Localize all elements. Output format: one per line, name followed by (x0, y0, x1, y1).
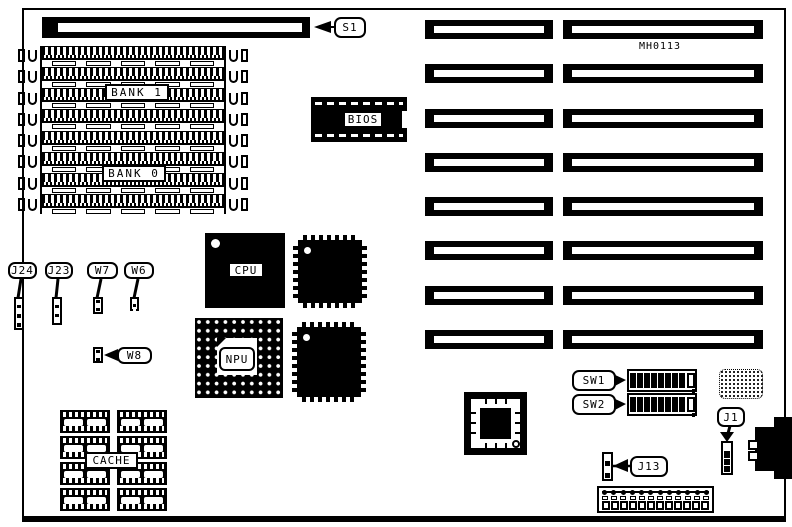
npu-label: NPU (219, 347, 255, 371)
motherboard-diagram: S1 (0, 0, 792, 527)
dip-switch-segment (658, 397, 664, 412)
pin1-marker (217, 338, 226, 347)
dip-pins (120, 412, 164, 417)
expansion-slot (425, 64, 553, 83)
dip-switch-segment (644, 373, 650, 388)
keyboard-connector-tab (748, 440, 759, 450)
jumper-cell (96, 358, 100, 361)
expansion-slots-right (563, 20, 763, 349)
simm-latch (18, 174, 40, 193)
simm-socket-row (42, 131, 224, 151)
simm-spacer (52, 82, 76, 87)
latch-pad (18, 92, 25, 105)
slot-stripe (434, 292, 544, 299)
simm-spacer (190, 82, 214, 87)
jumper-cell (724, 459, 730, 465)
dip-body (121, 497, 163, 504)
power-dash (657, 496, 663, 500)
jumper-cell (96, 304, 100, 307)
dot-pad-component (719, 369, 763, 399)
simm-spacer-row (42, 187, 224, 193)
plcc-ticks (477, 443, 514, 448)
latch-pad (241, 113, 248, 126)
cache-chip (117, 488, 167, 511)
power-dash (611, 496, 617, 500)
power-pin (685, 490, 690, 495)
slot-stripe (434, 336, 544, 343)
plcc-ticks (471, 405, 476, 442)
expansion-slot (425, 241, 553, 260)
bios-notch (402, 111, 407, 128)
slot-stripe (434, 203, 544, 210)
latch-hook-icon (28, 93, 37, 105)
simm-spacer (155, 61, 179, 66)
slot-stripe (434, 159, 544, 166)
power-pin (630, 490, 635, 495)
simm-spacer-row (42, 102, 224, 108)
dip-body (64, 497, 106, 504)
simm-spacer-row (42, 60, 224, 66)
j13-label: J13 (630, 456, 668, 477)
cpu-label: CPU (228, 262, 264, 278)
latch-pad (18, 70, 25, 83)
simm-banks (40, 46, 226, 214)
dip-pins (63, 426, 107, 431)
expansion-slot (563, 197, 763, 216)
expansion-slot (425, 109, 553, 128)
bank1-label: BANK 1 (105, 84, 169, 101)
npu-center: NPU (217, 338, 257, 375)
jumper-cell (605, 461, 610, 466)
jumper-cell (55, 309, 59, 313)
dip-switch-segment (665, 397, 671, 412)
simm-spacer (190, 188, 214, 193)
power-dash (602, 496, 608, 500)
dip-body (121, 419, 163, 426)
simm-pin-comb (42, 152, 224, 161)
dip-switch-segment (672, 373, 678, 388)
power-dash (675, 496, 681, 500)
latch-hook-icon (28, 199, 37, 211)
latch-hook-icon (28, 135, 37, 147)
cache-label: CACHE (85, 452, 138, 469)
jumper-cell (55, 314, 59, 318)
dip-pins (63, 438, 107, 443)
slot-stripe (572, 203, 754, 210)
simm-spacer (190, 146, 214, 151)
slot-stripe (572, 292, 754, 299)
latch-hook-icon (28, 114, 37, 126)
simm-spacer (52, 167, 76, 172)
latch-hook-icon (229, 156, 238, 168)
j24-jumper (14, 297, 24, 330)
dip-switch-segment (637, 397, 643, 412)
jumper-cell (17, 319, 21, 323)
power-socket (656, 501, 664, 510)
simm-spacer (121, 124, 145, 129)
w6-jumper (130, 297, 139, 311)
pin1-circle-icon (512, 440, 520, 448)
power-socket (638, 501, 646, 510)
simm-pin-comb (42, 131, 224, 140)
slot-stripe (572, 336, 754, 343)
power-pin (704, 490, 709, 495)
expansion-slot (425, 20, 553, 39)
simm-latch (18, 152, 40, 171)
switch-dot (692, 413, 695, 417)
qfp-chip-2 (292, 322, 366, 402)
latch-hook-icon (229, 93, 238, 105)
latch-pad (241, 198, 248, 211)
power-socket (647, 501, 655, 510)
latch-pad (18, 49, 25, 62)
power-dash (666, 496, 672, 500)
simm-spacer (86, 61, 110, 66)
slot-stripe (434, 115, 544, 122)
dip-switch-segment (665, 373, 671, 388)
simm-spacer-row (42, 123, 224, 129)
power-socket (692, 501, 700, 510)
simm-spacer (86, 103, 110, 108)
latch-hook-icon (229, 199, 238, 211)
simm-latch (18, 131, 40, 150)
simm-spacer-row (42, 208, 224, 214)
power-pin (658, 490, 663, 495)
j13-jumper (602, 452, 613, 481)
power-socket (620, 501, 628, 510)
simm-spacer-row (42, 145, 224, 151)
simm-socket-row (42, 109, 224, 129)
expansion-slot (563, 20, 763, 39)
sw2-switch (627, 393, 697, 416)
jumper-cell (133, 308, 136, 311)
power-pin (667, 490, 672, 495)
power-socket (683, 501, 691, 510)
power-dash (648, 496, 654, 500)
dip-switch-end (687, 397, 695, 412)
expansion-slot (563, 330, 763, 349)
plcc-ticks (515, 405, 520, 442)
dip-switch-segment (651, 373, 657, 388)
simm-latches-left (18, 46, 40, 214)
j23-jumper (52, 297, 62, 325)
cache-chip (117, 410, 167, 433)
plcc-chip (464, 392, 527, 455)
latch-pad (18, 198, 25, 211)
slot-stripe (572, 115, 754, 122)
simm-spacer (52, 146, 76, 151)
jumper-cell (724, 466, 730, 472)
simm-spacer (52, 103, 76, 108)
latch-pad (241, 49, 248, 62)
dip-body (121, 471, 163, 478)
expansion-slot (563, 64, 763, 83)
dip-switch-segment (651, 397, 657, 412)
dip-pins (63, 504, 107, 509)
dip-pins (120, 426, 164, 431)
power-pin (648, 490, 653, 495)
simm-spacer (190, 124, 214, 129)
latch-pad (241, 134, 248, 147)
power-pin (602, 490, 607, 495)
simm-latch (18, 89, 40, 108)
w8-label: W8 (117, 347, 152, 364)
simm-latch (226, 195, 248, 214)
simm-spacer (190, 209, 214, 214)
latch-hook-icon (229, 50, 238, 62)
latch-pad (18, 113, 25, 126)
simm-latches-right (226, 46, 248, 214)
simm-spacer (155, 188, 179, 193)
pin1-dot (304, 247, 311, 254)
cache-chip (60, 410, 110, 433)
jumper-cell (133, 304, 136, 307)
jumper-cell (724, 451, 730, 457)
latch-hook-icon (28, 71, 37, 83)
plcc-ticks (477, 399, 514, 404)
plcc-die (480, 408, 511, 439)
power-dash-row (602, 496, 709, 500)
jumper-cell (55, 318, 59, 322)
expansion-slot (425, 286, 553, 305)
simm-spacer (121, 103, 145, 108)
power-dash (630, 496, 636, 500)
simm-socket-row (42, 194, 224, 214)
latch-pad (241, 92, 248, 105)
jumper-cell (96, 300, 100, 303)
board-model-label: MH0113 (628, 41, 692, 54)
slot-stripe (572, 70, 754, 77)
cache-chip (60, 488, 110, 511)
simm-socket-row (42, 46, 224, 66)
simm-spacer (52, 209, 76, 214)
s1-slot-stripe (58, 23, 302, 32)
latch-pad (241, 70, 248, 83)
j1-label: J1 (717, 407, 745, 427)
simm-latch (18, 110, 40, 129)
simm-latch (226, 46, 248, 65)
bank0-label: BANK 0 (102, 165, 166, 182)
jumper-cell (17, 309, 21, 313)
bios-socket-dashes (315, 134, 403, 137)
simm-spacer (155, 146, 179, 151)
simm-spacer (52, 124, 76, 129)
power-socket (674, 501, 682, 510)
power-socket (611, 501, 619, 510)
dip-pins (120, 490, 164, 495)
dip-switch-segment (679, 373, 685, 388)
dip-switch-segments (630, 373, 685, 388)
expansion-slot (563, 109, 763, 128)
dip-body (64, 471, 106, 478)
jumper-cell (605, 473, 610, 478)
latch-hook-icon (28, 178, 37, 190)
dip-switch-segments (630, 397, 685, 412)
slot-stripe (572, 247, 754, 254)
latch-pad (241, 177, 248, 190)
dip-body (64, 445, 106, 452)
sw1-label: SW1 (572, 370, 616, 391)
bios-label: BIOS (343, 111, 383, 128)
jumper-cell (605, 455, 610, 460)
power-connector (597, 486, 714, 513)
jumper-cell (96, 308, 100, 311)
dip-switch-segment (679, 397, 685, 412)
simm-spacer (190, 61, 214, 66)
slot-stripe (434, 247, 544, 254)
bios-socket-dashes (315, 102, 403, 105)
simm-spacer (86, 209, 110, 214)
expansion-slots-left (425, 20, 553, 349)
latch-pad (241, 155, 248, 168)
simm-spacer (52, 188, 76, 193)
latch-hook-icon (229, 135, 238, 147)
latch-hook-icon (28, 156, 37, 168)
latch-pad (18, 155, 25, 168)
bios-chip: BIOS (311, 97, 407, 142)
simm-pin-comb (42, 109, 224, 118)
simm-spacer (190, 167, 214, 172)
simm-latch (18, 195, 40, 214)
jumper-cell (96, 350, 100, 353)
simm-spacer (155, 209, 179, 214)
j24-label: J24 (8, 262, 37, 279)
dip-pins (63, 478, 107, 483)
simm-spacer (121, 61, 145, 66)
dip-switch-end (687, 373, 695, 388)
j1-jumper (721, 441, 733, 475)
simm-latch (18, 67, 40, 86)
latch-pad (18, 177, 25, 190)
dip-pins (120, 478, 164, 483)
expansion-slot (425, 330, 553, 349)
slot-stripe (572, 26, 754, 33)
jumper-cell (17, 314, 21, 318)
expansion-slot (425, 153, 553, 172)
power-pin (695, 490, 700, 495)
s1-slot (42, 17, 310, 38)
simm-latch (226, 67, 248, 86)
jumper-cell (17, 323, 21, 327)
jumper-cell (724, 444, 730, 450)
simm-latch (226, 89, 248, 108)
sw1-switch (627, 369, 697, 392)
slot-stripe (434, 26, 544, 33)
dip-pins (63, 412, 107, 417)
cpu-chip: CPU (205, 233, 285, 308)
dip-pins (120, 504, 164, 509)
jumper-cell (17, 305, 21, 309)
j23-label: J23 (45, 262, 73, 279)
dip-switch-segment (658, 373, 664, 388)
w7-label: W7 (87, 262, 118, 279)
power-pin (621, 490, 626, 495)
sw2-label: SW2 (572, 394, 616, 415)
w8-jumper (93, 347, 103, 363)
expansion-slot (425, 197, 553, 216)
power-socket (665, 501, 673, 510)
dip-pins (120, 438, 164, 443)
simm-pin-comb (42, 67, 224, 76)
jumper-cell (605, 467, 610, 472)
latch-hook-icon (229, 71, 238, 83)
jumper-cell (17, 300, 21, 304)
dip-switch-segment (637, 373, 643, 388)
simm-latch (226, 131, 248, 150)
expansion-slot (563, 286, 763, 305)
jumper-cell (96, 354, 100, 357)
latch-pad (18, 134, 25, 147)
simm-spacer (86, 188, 110, 193)
qfp-chip-1 (293, 235, 367, 308)
power-socket (629, 501, 637, 510)
simm-pin-comb (42, 194, 224, 203)
simm-spacer (86, 124, 110, 129)
power-dash (694, 496, 700, 500)
latch-hook-icon (229, 178, 238, 190)
expansion-slot (563, 241, 763, 260)
power-socket (701, 501, 709, 510)
simm-spacer (155, 124, 179, 129)
dip-switch-segment (630, 397, 636, 412)
s1-label: S1 (334, 17, 366, 38)
power-socket (602, 501, 610, 510)
simm-spacer (155, 103, 179, 108)
jumper-cell (55, 300, 59, 304)
dip-body (64, 419, 106, 426)
expansion-slot (563, 153, 763, 172)
npu-socket: NPU (195, 318, 283, 398)
dip-switch-segment (644, 397, 650, 412)
keyboard-connector-tab (748, 451, 759, 461)
simm-spacer (121, 146, 145, 151)
slot-stripe (434, 70, 544, 77)
simm-latch (226, 152, 248, 171)
power-dash (639, 496, 645, 500)
latch-hook-icon (229, 114, 238, 126)
simm-spacer (121, 209, 145, 214)
simm-pin-comb (42, 46, 224, 55)
simm-spacer (52, 61, 76, 66)
power-pin (676, 490, 681, 495)
w6-label: W6 (124, 262, 154, 279)
latch-hook-icon (28, 50, 37, 62)
w7-jumper (93, 297, 103, 314)
power-dash (620, 496, 626, 500)
simm-spacer (190, 103, 214, 108)
simm-spacer (86, 146, 110, 151)
power-pin (611, 490, 616, 495)
dip-switch-segment (630, 373, 636, 388)
power-dash (703, 496, 709, 500)
simm-latch (226, 110, 248, 129)
power-socket-row (602, 501, 709, 510)
simm-latch (226, 174, 248, 193)
pin1-dot (211, 239, 220, 248)
dip-body (121, 445, 163, 452)
power-dash (685, 496, 691, 500)
dip-pins (63, 490, 107, 495)
jumper-cell (133, 300, 136, 303)
slot-stripe (572, 159, 754, 166)
simm-spacer (121, 188, 145, 193)
dip-switch-segment (672, 397, 678, 412)
power-pin-row (602, 489, 709, 495)
simm-latch (18, 46, 40, 65)
jumper-cell (55, 305, 59, 309)
power-pin (639, 490, 644, 495)
keyboard-connector-body (755, 427, 784, 471)
